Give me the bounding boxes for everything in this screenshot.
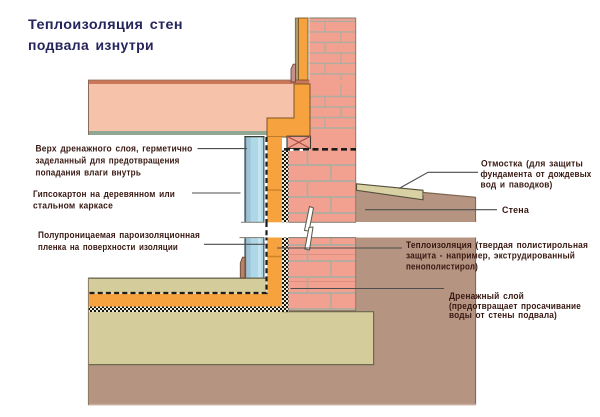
svg-text:защита - например, экструдиров: защита - например, экструдированный: [406, 251, 575, 261]
svg-text:подвала изнутри: подвала изнутри: [28, 38, 154, 53]
svg-text:Гипсокартон на деревянном или: Гипсокартон на деревянном или: [33, 189, 175, 199]
svg-text:заделанный для предотвращения: заделанный для предотвращения: [36, 156, 180, 166]
svg-text:Верх дренажного слоя, герметич: Верх дренажного слоя, герметично: [36, 144, 193, 154]
svg-text:пенополистирол): пенополистирол): [406, 261, 478, 271]
svg-text:Теплоизоляция стен: Теплоизоляция стен: [28, 17, 183, 32]
svg-text:пленка на поверхности изоляции: пленка на поверхности изоляции: [38, 242, 178, 252]
svg-text:Дренажный слой: Дренажный слой: [449, 291, 524, 301]
svg-text:Теплоизоляция (твердая полисти: Теплоизоляция (твердая полистирольная: [406, 240, 588, 250]
svg-text:Отмостка (для защиты: Отмостка (для защиты: [481, 159, 583, 169]
svg-text:стальном каркасе: стальном каркасе: [33, 201, 113, 211]
svg-text:попадания влаги внутрь: попадания влаги внутрь: [36, 167, 142, 177]
svg-text:фундамента от дождевых: фундамента от дождевых: [481, 169, 593, 179]
svg-text:Полупроницаемая пароизоляционн: Полупроницаемая пароизоляционная: [38, 230, 200, 240]
svg-text:вод и паводков): вод и паводков): [481, 180, 553, 190]
svg-text:Стена: Стена: [502, 205, 530, 215]
svg-text:воды от стены подвала): воды от стены подвала): [449, 310, 557, 320]
